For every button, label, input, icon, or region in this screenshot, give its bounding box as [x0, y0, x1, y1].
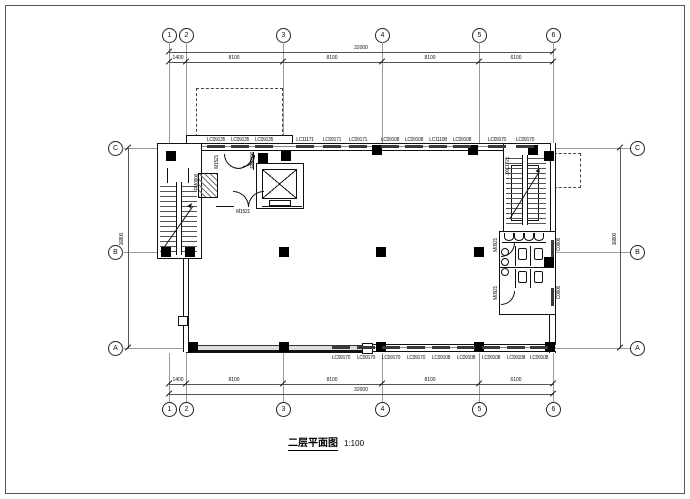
- wall-lobby: [262, 206, 302, 207]
- window-label: LC09170: [404, 355, 428, 361]
- window-label: LC09170: [329, 355, 353, 361]
- elevator-car: [262, 169, 297, 199]
- sink-basin: [514, 233, 524, 241]
- window-label: LC09108: [479, 355, 503, 361]
- window: [207, 145, 225, 148]
- stair-flight-mark: [167, 168, 168, 183]
- dim-text-seg: 6100: [496, 55, 536, 61]
- window-label: LC09135: [204, 137, 228, 143]
- door-label: M1521: [231, 209, 255, 215]
- window: [231, 145, 249, 148]
- grid-bubble-4-bottom: 4: [375, 402, 390, 417]
- column: [185, 247, 195, 257]
- window: [357, 346, 375, 349]
- dim-text-seg: 8100: [410, 55, 450, 61]
- window-label: C0906: [556, 286, 562, 299]
- dim-line-top-segments: [169, 62, 554, 63]
- dim-text-seg: 1400: [158, 377, 198, 383]
- canopy-outline-top: [196, 88, 283, 137]
- dim-line-top-total: [169, 52, 554, 53]
- dim-text-seg: 6100: [496, 377, 536, 383]
- window: [381, 145, 399, 148]
- stair-flight-mark: [188, 168, 189, 183]
- window-label: LC09108: [450, 137, 474, 143]
- column: [258, 153, 268, 163]
- column: [161, 247, 171, 257]
- toilet-fixture: [518, 271, 527, 283]
- window-label: LC09170: [354, 355, 378, 361]
- window-label: LC09108: [527, 355, 551, 361]
- sink-basin: [524, 233, 534, 241]
- window-label: LC09108: [378, 137, 402, 143]
- window: [507, 346, 525, 349]
- wall-junction-marker: [178, 316, 188, 326]
- window-label: LC11108: [426, 137, 450, 143]
- grid-line-5-top: [479, 42, 480, 143]
- dim-line-bottom-segments: [169, 384, 554, 385]
- stall-partition: [515, 269, 516, 288]
- dim-text-height-left: 16800: [119, 233, 125, 245]
- window: [323, 145, 341, 148]
- window-label: C0906: [556, 238, 562, 251]
- toilet-fixture: [534, 271, 543, 283]
- dim-text-seg: 1400: [158, 55, 198, 61]
- dim-text-seg: 8100: [312, 55, 352, 61]
- shaft-closet: [198, 173, 218, 198]
- sheet-border: [5, 5, 685, 494]
- window: [429, 145, 447, 148]
- dim-line-left-total: [128, 148, 129, 348]
- window-label: LC09108: [454, 355, 478, 361]
- dim-line-bottom-total: [169, 394, 554, 395]
- grid-bubble-5-top: 5: [472, 28, 487, 43]
- window: [453, 145, 471, 148]
- grid-line-4-top: [382, 42, 383, 143]
- drawing-title: 二层平面图1:100: [288, 433, 364, 451]
- sink-basin: [504, 233, 514, 241]
- window: [516, 145, 534, 148]
- dim-text-seg: 8100: [214, 377, 254, 383]
- grid-bubble-1-top: 1: [162, 28, 177, 43]
- stair-rail-left: [176, 182, 182, 255]
- grid-bubble-4-top: 4: [375, 28, 390, 43]
- window: [349, 145, 367, 148]
- grid-line-6-top: [553, 42, 554, 143]
- toilet-fixture: [518, 248, 527, 260]
- door-label: FM0906: [250, 152, 256, 169]
- door-label: M1521: [214, 155, 220, 169]
- window: [407, 346, 425, 349]
- column: [188, 342, 198, 352]
- window-label: LC09108: [429, 355, 453, 361]
- window: [255, 145, 273, 148]
- drawing-sheet: 1 2 3 4 5 6 1 2 3 4 5 6 C B A C B A 3200…: [0, 0, 690, 499]
- stall-partition: [530, 246, 531, 266]
- grid-bubble-6-bottom: 6: [546, 402, 561, 417]
- dim-text-seg: 8100: [312, 377, 352, 383]
- window: [432, 346, 450, 349]
- grid-line-A-left: [122, 348, 186, 349]
- dim-text-total-top: 32000: [341, 45, 381, 51]
- window: [530, 346, 548, 349]
- door-label: M0921: [493, 238, 499, 252]
- wall-lobby: [216, 206, 234, 207]
- grid-line-3-top: [283, 42, 284, 143]
- column: [544, 151, 554, 161]
- column: [279, 247, 289, 257]
- grid-bubble-5-bottom: 5: [472, 402, 487, 417]
- grid-bubble-2-top: 2: [179, 28, 194, 43]
- grid-bubble-A-left: A: [108, 341, 123, 356]
- urinal: [501, 258, 509, 266]
- stall-partition: [530, 269, 531, 288]
- column: [166, 151, 176, 161]
- window: [551, 240, 554, 258]
- window: [332, 346, 350, 349]
- stall-partition: [515, 246, 516, 266]
- window: [405, 145, 423, 148]
- window-label: LC09170: [513, 137, 537, 143]
- grid-bubble-2-bottom: 2: [179, 402, 194, 417]
- window-label: LC11171: [293, 137, 317, 143]
- grid-line-B-right: [556, 252, 630, 253]
- wall-left-lower: [183, 257, 189, 352]
- window-label: LC09108: [504, 355, 528, 361]
- window: [296, 145, 314, 148]
- window-label: LC09170: [485, 137, 509, 143]
- grid-bubble-B-right: B: [630, 245, 645, 260]
- window: [482, 346, 500, 349]
- toilet-fixture: [534, 248, 543, 260]
- window: [551, 288, 554, 306]
- column: [474, 247, 484, 257]
- window: [457, 346, 475, 349]
- door-label: JXC1721: [505, 157, 511, 175]
- grid-bubble-6-top: 6: [546, 28, 561, 43]
- grid-bubble-3-top: 3: [276, 28, 291, 43]
- window-label: LC09171: [320, 137, 344, 143]
- grid-bubble-C-left: C: [108, 141, 123, 156]
- grid-bubble-3-bottom: 3: [276, 402, 291, 417]
- grid-bubble-1-bottom: 1: [162, 402, 177, 417]
- sink-basin: [534, 233, 544, 241]
- column: [281, 151, 291, 161]
- dim-text-seg: 8100: [214, 55, 254, 61]
- column: [544, 257, 554, 267]
- window-label: LC09170: [379, 355, 403, 361]
- grid-bubble-B-left: B: [108, 245, 123, 260]
- dim-line-right-total: [620, 148, 621, 348]
- dim-text-total-bottom: 32000: [341, 387, 381, 393]
- column: [279, 342, 289, 352]
- drawing-scale: 1:100: [344, 439, 364, 448]
- window: [488, 145, 506, 148]
- dim-text-height-right: 16800: [612, 233, 618, 245]
- window-label: LC09135: [228, 137, 252, 143]
- dim-text-seg: 8100: [410, 377, 450, 383]
- grid-bubble-C-right: C: [630, 141, 645, 156]
- window-label: LC09108: [402, 137, 426, 143]
- grid-bubble-A-right: A: [630, 341, 645, 356]
- column: [376, 247, 386, 257]
- drawing-title-text: 二层平面图: [288, 438, 338, 451]
- urinal: [501, 268, 509, 276]
- window-label: LC09135: [252, 137, 276, 143]
- door-label: FM0906: [194, 174, 200, 191]
- window: [382, 346, 400, 349]
- door-label: M0921: [493, 286, 499, 300]
- window-label: LC09171: [346, 137, 370, 143]
